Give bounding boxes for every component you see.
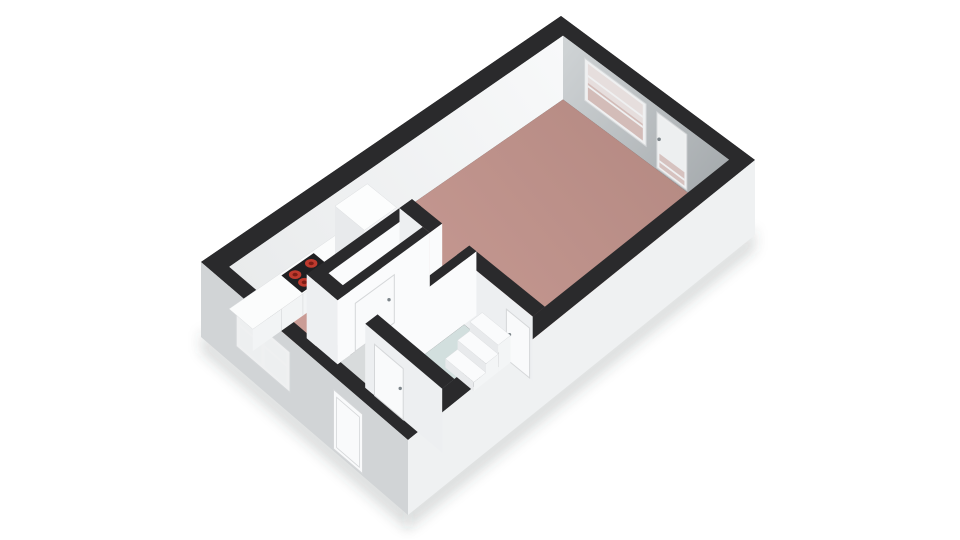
floorplan-3d-view bbox=[0, 0, 960, 540]
closet-door-handle bbox=[387, 298, 390, 301]
floorplan-canvas bbox=[0, 0, 960, 540]
stove-burner-core bbox=[293, 273, 298, 277]
balcony-door-handle bbox=[657, 138, 661, 142]
bathroom-hall-door-handle bbox=[399, 387, 402, 390]
stove-burner-core bbox=[302, 281, 307, 285]
hall-closet-wall-face-se bbox=[338, 291, 350, 364]
stove-burner-core bbox=[309, 262, 314, 266]
